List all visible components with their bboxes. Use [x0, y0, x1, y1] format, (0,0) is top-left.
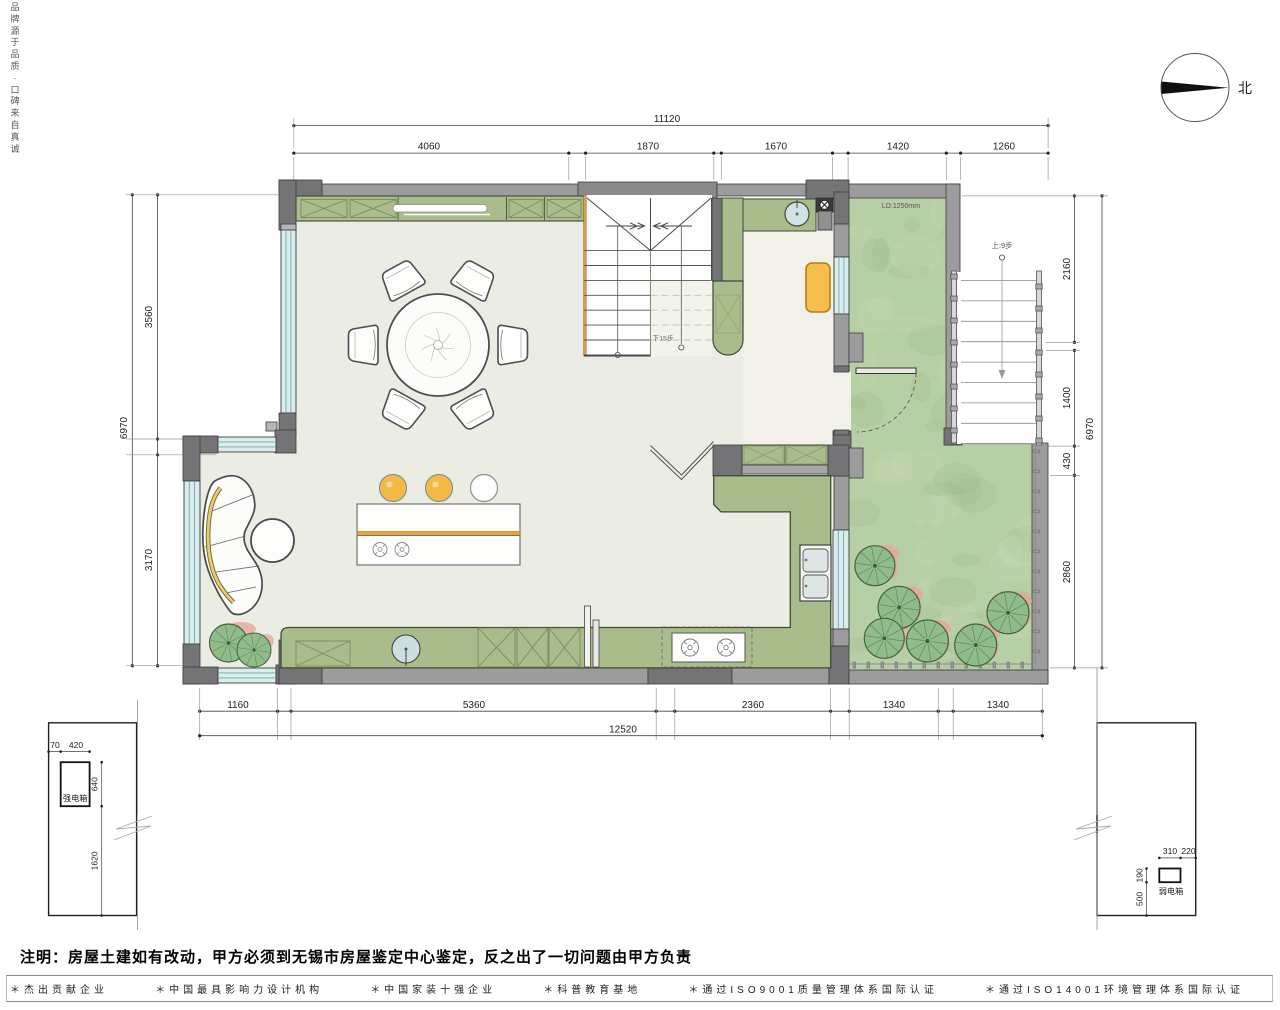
svg-text:1400: 1400: [1062, 386, 1073, 409]
svg-text:2160: 2160: [1062, 257, 1073, 280]
svg-text:3170: 3170: [144, 548, 155, 571]
svg-text:5360: 5360: [463, 700, 486, 711]
svg-text:1160: 1160: [227, 700, 249, 711]
svg-text:4060: 4060: [418, 142, 441, 153]
svg-text:1420: 1420: [887, 142, 910, 153]
svg-text:1340: 1340: [987, 700, 1010, 711]
svg-text:1620: 1620: [90, 851, 100, 870]
svg-text:北: 北: [1238, 80, 1252, 96]
svg-text:1340: 1340: [883, 700, 906, 711]
svg-text:下15步: 下15步: [652, 335, 673, 343]
svg-text:6970: 6970: [119, 416, 130, 439]
svg-text:2860: 2860: [1062, 560, 1073, 583]
svg-text:强电箱: 强电箱: [63, 793, 88, 803]
svg-text:430: 430: [1062, 452, 1073, 469]
svg-text:6970: 6970: [1085, 417, 1096, 440]
svg-text:1670: 1670: [765, 142, 788, 153]
svg-text:640: 640: [90, 777, 100, 791]
svg-text:11120: 11120: [654, 114, 681, 125]
svg-text:220: 220: [1181, 846, 1195, 856]
svg-text:310: 310: [1163, 846, 1177, 856]
svg-text:190: 190: [1135, 868, 1145, 882]
svg-text:2360: 2360: [742, 700, 765, 711]
svg-text:70: 70: [50, 740, 60, 750]
svg-text:LD:1250mm: LD:1250mm: [882, 203, 920, 210]
svg-text:12520: 12520: [609, 725, 637, 736]
svg-text:500: 500: [1135, 892, 1145, 906]
svg-text:1870: 1870: [637, 142, 660, 153]
svg-text:420: 420: [69, 740, 83, 750]
svg-text:3560: 3560: [144, 305, 155, 328]
svg-text:弱电箱: 弱电箱: [1159, 886, 1184, 896]
svg-text:1260: 1260: [993, 142, 1016, 153]
svg-text:上:9步: 上:9步: [991, 241, 1013, 250]
